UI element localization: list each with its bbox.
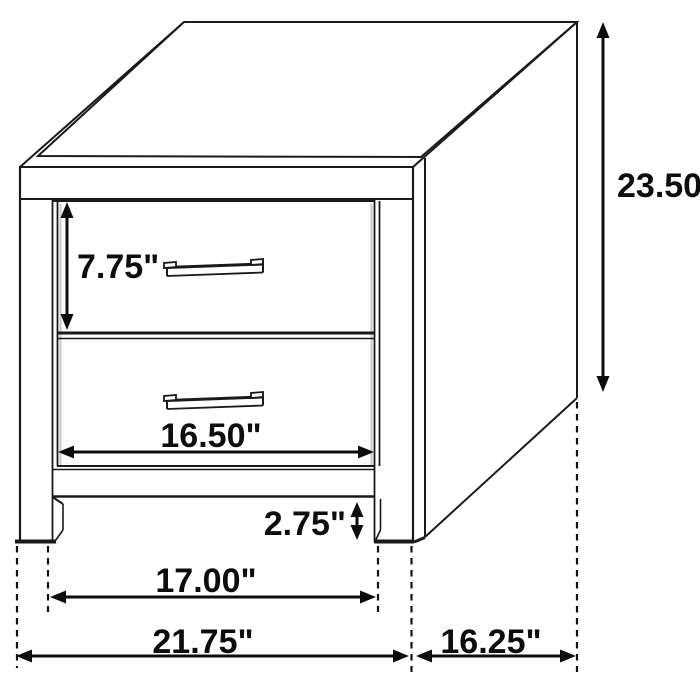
diagram-canvas: 7.75" 23.50" 16.50" 2.75" 17	[0, 0, 700, 700]
arrowhead-right	[560, 650, 576, 663]
handle-right-post	[251, 259, 263, 265]
arrowhead-left	[50, 591, 66, 604]
dimension-label-drawer-width: 16.50"	[160, 417, 261, 455]
drawer-2-handle	[164, 392, 263, 409]
handle-bar-bottom	[167, 273, 263, 277]
arrowhead-up	[61, 202, 74, 218]
left-leg-inner-chamfer	[56, 530, 64, 541]
arrowhead-down	[61, 314, 74, 330]
dimension-leg-span: 17.00"	[50, 562, 376, 604]
drawer-1-handle	[164, 259, 263, 276]
nightstand-dimension-drawing: 7.75" 23.50" 16.50" 2.75" 17	[0, 0, 700, 700]
dimension-label-base-clearance: 2.75"	[264, 505, 346, 543]
side-panel-bottom-edge	[425, 398, 577, 537]
arrowhead-left	[16, 650, 32, 663]
dimension-label-overall-width: 21.75"	[152, 623, 253, 661]
dimension-base-clearance: 2.75"	[264, 502, 364, 543]
arrowhead-down	[597, 376, 610, 392]
dimension-label-drawer-height: 7.75"	[77, 248, 159, 286]
dimension-label-overall-depth: 16.25"	[440, 623, 541, 661]
arrowhead-down	[351, 525, 364, 540]
dimension-drawer-height: 7.75"	[61, 202, 160, 330]
arrowhead-up	[351, 502, 364, 517]
arrowhead-up	[597, 22, 610, 38]
handle-right-post	[251, 392, 263, 398]
dimension-overall-height: 23.50"	[597, 22, 700, 392]
dimension-label-leg-span: 17.00"	[155, 562, 256, 600]
arrowhead-right	[393, 650, 409, 663]
top-front-band	[20, 167, 413, 199]
handle-bar-top	[167, 397, 263, 401]
top-surface	[38, 22, 577, 157]
right-leg-bottom-side	[414, 538, 425, 543]
dimension-label-overall-height: 23.50"	[617, 167, 700, 205]
arrowhead-right	[360, 591, 376, 604]
dimension-overall-width: 21.75"	[16, 623, 409, 663]
handle-left-post	[164, 262, 176, 268]
dimension-drawer-width: 16.50"	[58, 417, 374, 459]
right-leg-inner-chamfer	[376, 530, 381, 541]
dimension-overall-depth: 16.25"	[416, 623, 576, 663]
handle-bar-bottom	[167, 406, 263, 410]
nightstand-top	[20, 22, 577, 199]
arrowhead-left	[416, 650, 432, 663]
left-leg-inner-top	[53, 497, 64, 504]
handle-bar-top	[167, 264, 263, 268]
nightstand-front-frame	[15, 167, 425, 542]
handle-left-post	[164, 395, 176, 401]
